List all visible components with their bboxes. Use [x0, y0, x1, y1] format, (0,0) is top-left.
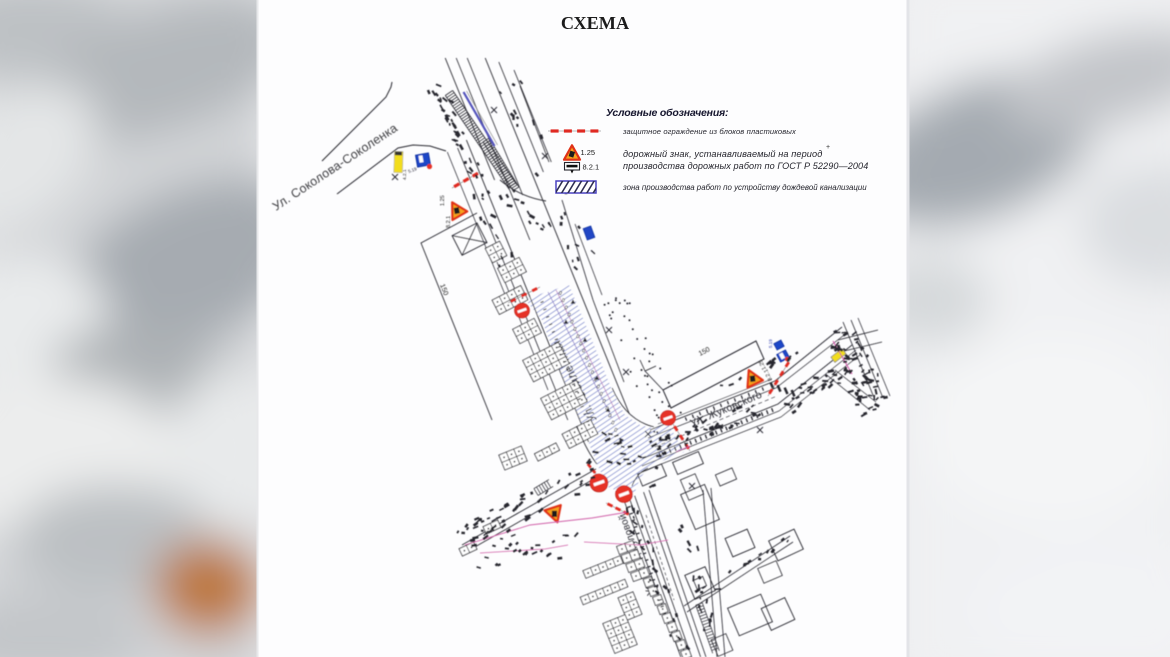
svg-text:зона производства работ по: зона производства работ по устройству до…	[622, 183, 867, 192]
svg-text:1.25: 1.25	[581, 148, 596, 157]
svg-text:дорожный знак, устанавливаем: дорожный знак, устанавливаемый на период	[623, 149, 822, 159]
svg-text:5.19: 5.19	[768, 339, 773, 348]
svg-text:8.2.1: 8.2.1	[446, 216, 452, 228]
svg-text:+: +	[826, 144, 830, 151]
svg-text:защитное ограждение из блок: защитное ограждение из блоков пластиковы…	[622, 127, 797, 136]
svg-text:8.2.1: 8.2.1	[583, 163, 600, 172]
svg-text:СХЕМА: СХЕМА	[561, 13, 629, 33]
svg-text:1.25: 1.25	[440, 195, 446, 206]
svg-text:Условные обозначения:: Условные обозначения:	[606, 107, 728, 119]
svg-text:производства дорожных работ: производства дорожных работ по ГОСТ Р 52…	[623, 161, 868, 171]
